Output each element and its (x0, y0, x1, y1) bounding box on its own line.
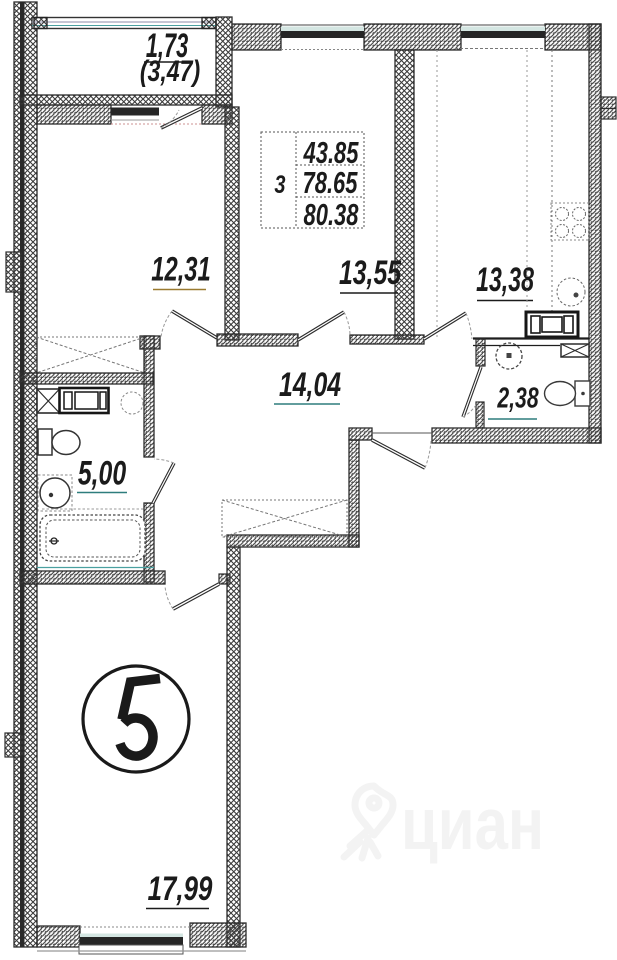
svg-text:78.65: 78.65 (303, 165, 359, 199)
svg-text:12,31: 12,31 (151, 250, 211, 288)
svg-text:(3,47): (3,47) (140, 54, 200, 88)
svg-text:2,38: 2,38 (497, 382, 540, 414)
svg-text:3: 3 (274, 171, 285, 199)
svg-text:13,38: 13,38 (476, 262, 535, 299)
svg-text:13,55: 13,55 (339, 254, 401, 292)
svg-text:14,04: 14,04 (279, 366, 341, 404)
svg-text:80.38: 80.38 (304, 197, 359, 231)
svg-text:5,00: 5,00 (78, 455, 127, 493)
svg-text:17,99: 17,99 (148, 871, 213, 908)
svg-text:циан: циан (401, 784, 544, 865)
